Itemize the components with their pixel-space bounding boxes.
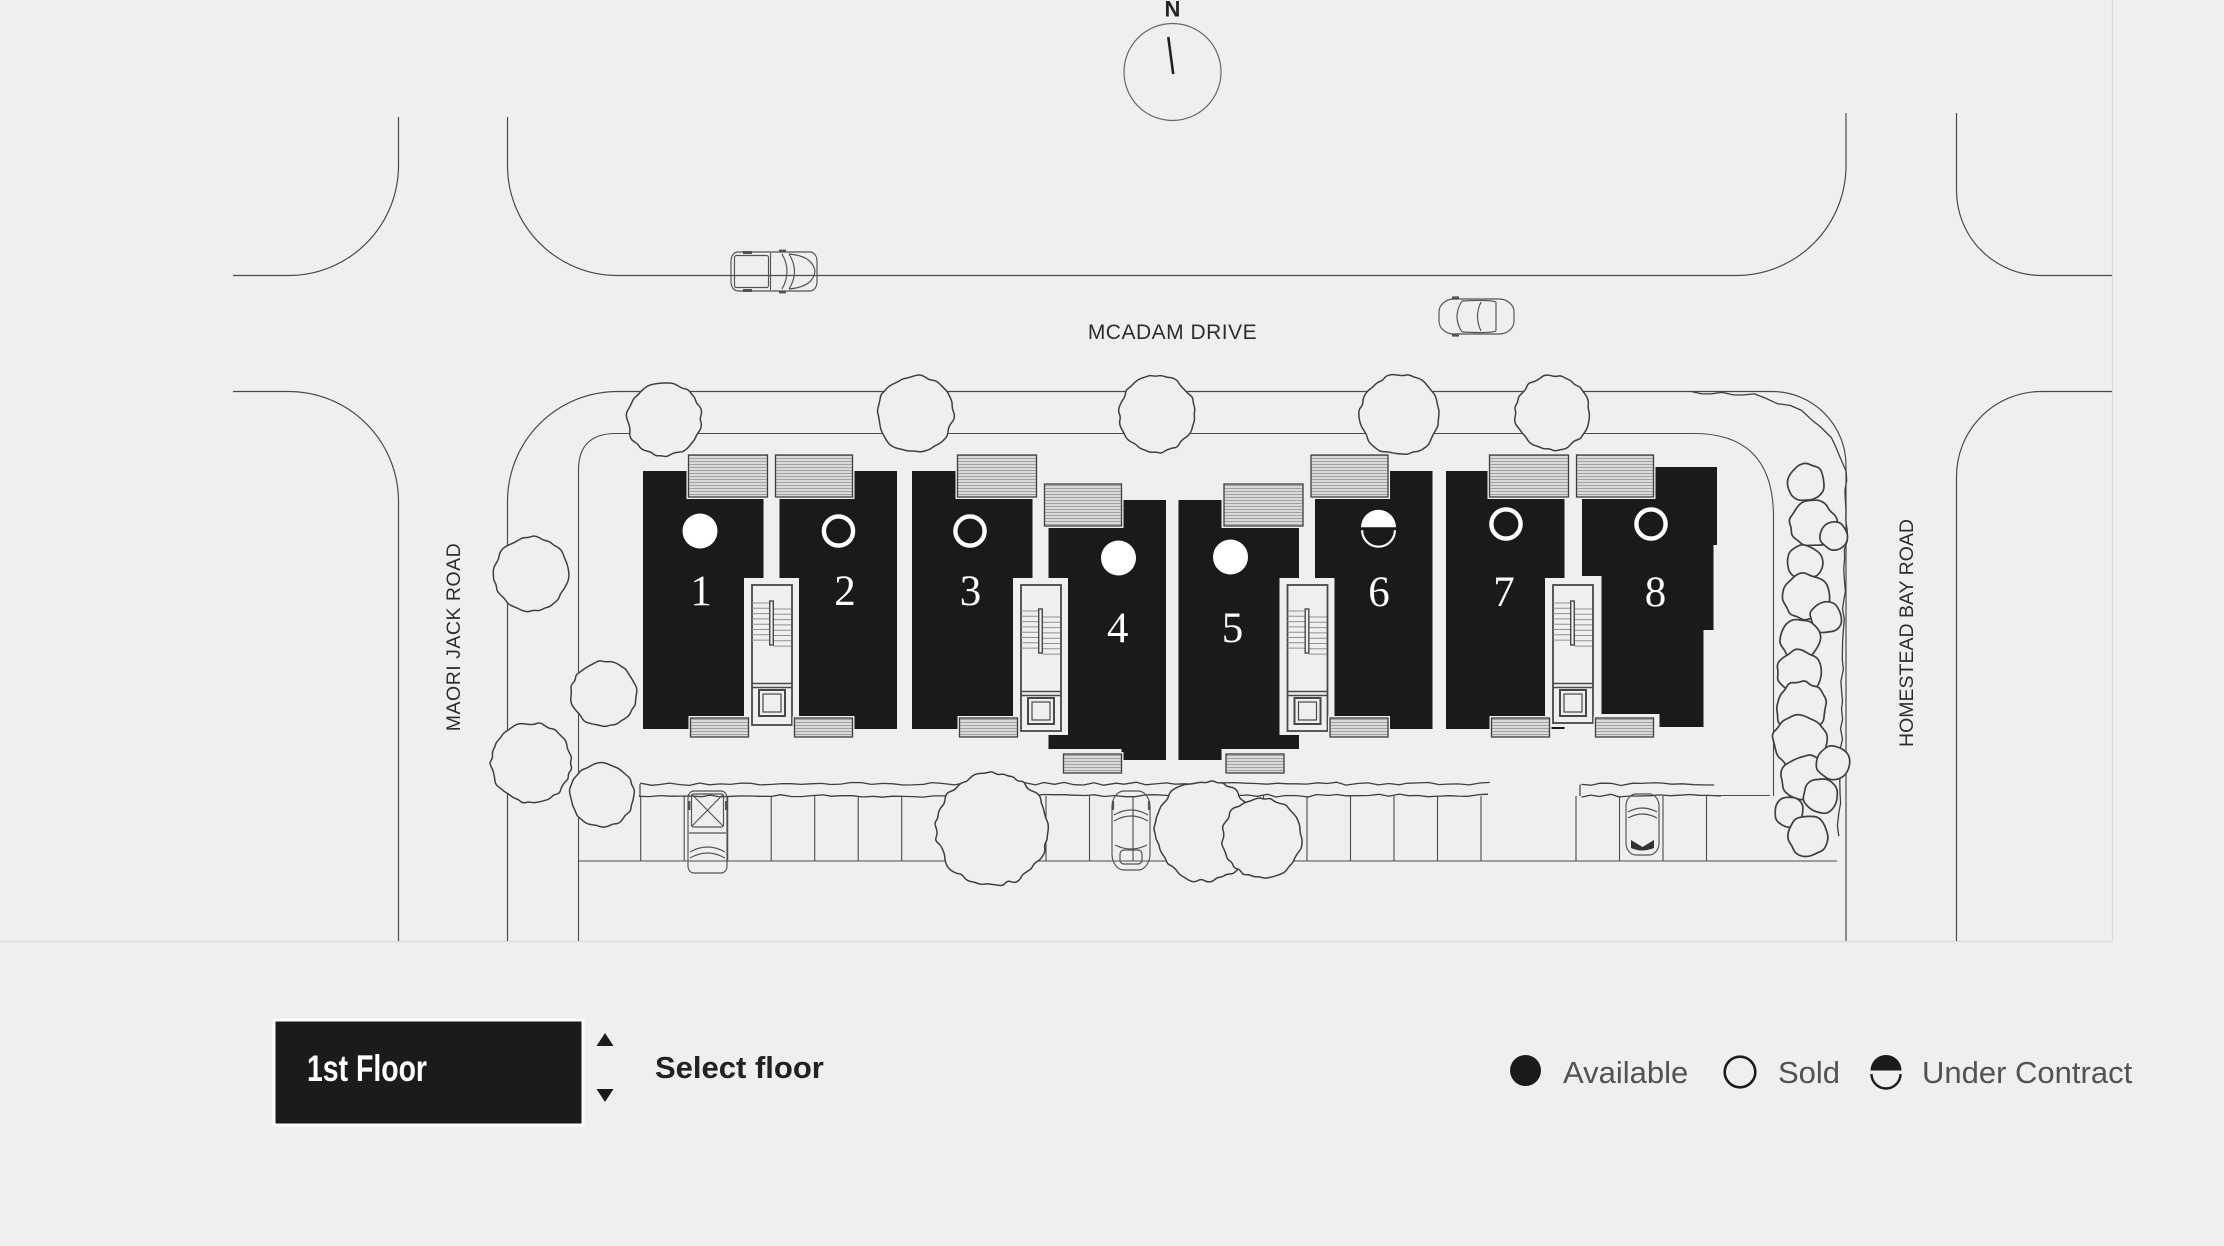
svg-text:Sold: Sold bbox=[1778, 1055, 1840, 1090]
svg-text:MAORI JACK ROAD: MAORI JACK ROAD bbox=[443, 543, 465, 731]
svg-text:N: N bbox=[1165, 0, 1181, 22]
svg-text:HOMESTEAD BAY ROAD: HOMESTEAD BAY ROAD bbox=[1896, 519, 1918, 747]
svg-text:7: 7 bbox=[1493, 569, 1515, 616]
svg-text:MCADAM DRIVE: MCADAM DRIVE bbox=[1088, 321, 1257, 344]
svg-text:2: 2 bbox=[834, 568, 856, 615]
svg-text:Available: Available bbox=[1563, 1055, 1688, 1090]
svg-text:3: 3 bbox=[960, 568, 982, 615]
svg-text:6: 6 bbox=[1368, 569, 1390, 616]
svg-text:5: 5 bbox=[1222, 605, 1244, 652]
svg-text:8: 8 bbox=[1645, 569, 1667, 616]
svg-text:Select floor: Select floor bbox=[655, 1050, 824, 1085]
svg-text:4: 4 bbox=[1107, 605, 1129, 652]
svg-text:1st Floor: 1st Floor bbox=[307, 1048, 427, 1089]
svg-text:Under Contract: Under Contract bbox=[1922, 1055, 2133, 1090]
svg-text:1: 1 bbox=[690, 568, 712, 615]
